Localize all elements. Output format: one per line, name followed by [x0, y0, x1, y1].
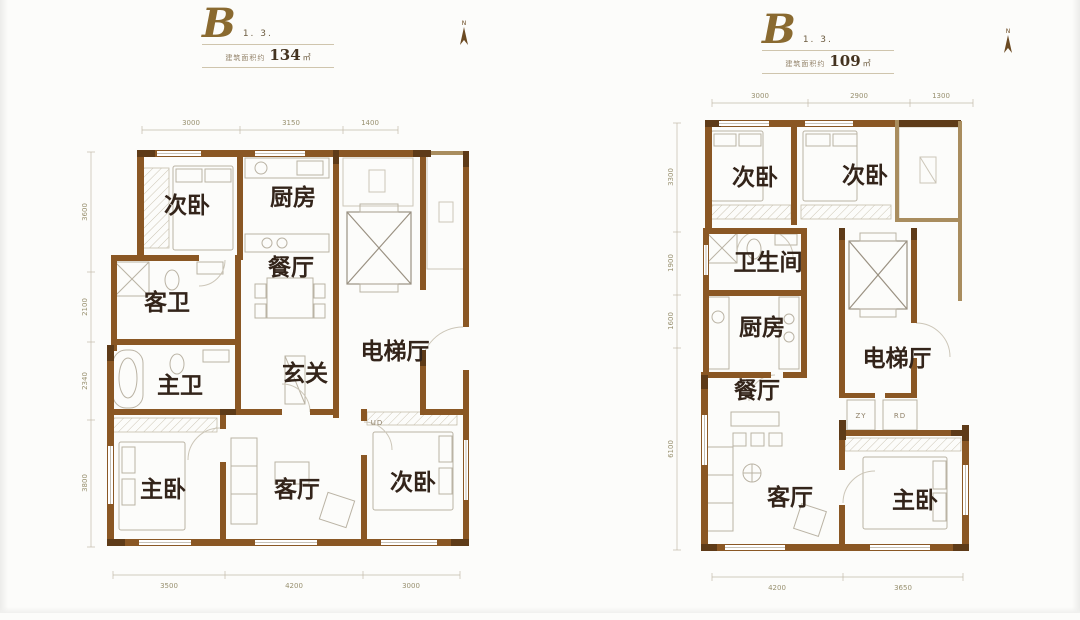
- room-label-foyer: 玄关: [282, 360, 328, 387]
- header-rule: [202, 67, 334, 68]
- dim-label: 3600: [81, 203, 89, 221]
- master-bed-furniture: [113, 418, 217, 530]
- north-arrow-icon: N: [1000, 26, 1016, 56]
- dim-label: 1600: [667, 312, 675, 330]
- dim-label: 3150: [282, 119, 300, 127]
- room-label-master-bedroom: 主卧: [140, 477, 186, 503]
- room-label-living: 客厅: [767, 484, 813, 511]
- dim-label: 4200: [285, 582, 303, 590]
- dining-table: [731, 412, 782, 446]
- area-unit: ㎡: [303, 52, 311, 63]
- dim-label: 2900: [850, 92, 868, 100]
- unit-sub-label: 1. 3.: [243, 29, 273, 39]
- dim-label: 1400: [361, 119, 379, 127]
- dim-label: 4200: [768, 584, 786, 592]
- dimension-lines: 3000 2900 1300 4200 3650 3300 1900 1600 …: [667, 92, 973, 592]
- elevator-shaft-icon: [347, 204, 411, 292]
- room-label-dining: 餐厅: [734, 378, 780, 404]
- room-label-bedroom-top: 次卧: [164, 192, 210, 219]
- north-arrow-glyph: [460, 27, 468, 45]
- unit-type-letter: B: [202, 6, 234, 42]
- entry-door-label: UD: [371, 419, 384, 427]
- dim-label: 3000: [182, 119, 200, 127]
- unit-type-letter: B: [762, 12, 794, 48]
- unit-sub-label: 1. 3.: [803, 35, 833, 45]
- floor-plan-109: 3000 2900 1300 4200 3650 3300 1900 1600 …: [655, 85, 995, 605]
- north-arrow-icon: N: [456, 18, 472, 48]
- dim-label: 3000: [751, 92, 769, 100]
- area-value: 109: [829, 52, 860, 70]
- room-label-dining: 餐厅: [268, 255, 314, 281]
- balcony-outline: [899, 127, 959, 219]
- dim-label: 3650: [894, 584, 912, 592]
- dim-label: 2100: [81, 298, 89, 316]
- north-arrow-glyph: [1004, 35, 1012, 53]
- floor-plan-page: { "colors": { "wall": "#8a5724", "wall_d…: [0, 0, 1080, 613]
- room-label-master-bath: 主卫: [157, 373, 203, 399]
- left-edge-shade: [0, 0, 8, 613]
- room-label-master-bedroom: 主卧: [892, 488, 938, 514]
- room-label-guest-bath: 客卫: [144, 289, 190, 316]
- room-label-elevator-hall: 电梯厅: [863, 345, 932, 372]
- north-label: N: [462, 20, 467, 27]
- dim-label: 1300: [932, 92, 950, 100]
- dim-label: 1900: [667, 254, 675, 272]
- room-label-elevator-hall: 电梯厅: [361, 338, 430, 365]
- dim-label: 3800: [81, 474, 89, 492]
- room-label-kitchen: 厨房: [739, 314, 785, 341]
- floor-plan-134: 3000 3150 1400 3500 4200 3000 3600 2100 …: [75, 110, 505, 620]
- dim-label: 3000: [402, 582, 420, 590]
- room-label-kitchen: 厨房: [270, 184, 316, 211]
- header-rule: [762, 73, 894, 74]
- room-label-bedroom-right: 次卧: [842, 162, 888, 189]
- area-prefix: 建筑面积约: [225, 53, 265, 63]
- room-label-bathroom: 卫生间: [734, 250, 803, 276]
- plan-header-109: B 1. 3. 建筑面积约 109 ㎡: [762, 12, 894, 74]
- shaft-rd-label: RD: [894, 412, 906, 420]
- dim-label: 3500: [160, 582, 178, 590]
- room-label-bedroom-bottom: 次卧: [390, 469, 436, 496]
- shaft-zy-label: ZY: [855, 412, 866, 420]
- dim-label: 2340: [81, 372, 89, 390]
- area-unit: ㎡: [863, 58, 871, 69]
- area-prefix: 建筑面积约: [785, 59, 825, 69]
- room-label-living: 客厅: [274, 476, 320, 503]
- dining-table: [255, 278, 325, 318]
- area-value: 134: [269, 46, 300, 64]
- room-label-bedroom-left: 次卧: [732, 164, 778, 191]
- right-edge-shade: [1072, 0, 1080, 613]
- north-label: N: [1006, 28, 1011, 35]
- elevator-shaft-icon: [849, 233, 907, 317]
- plan-header-134: B 1. 3. 建筑面积约 134 ㎡: [202, 6, 334, 68]
- dim-label: 3300: [667, 168, 675, 186]
- dim-label: 6100: [667, 440, 675, 458]
- master-bed-furniture: [845, 438, 961, 529]
